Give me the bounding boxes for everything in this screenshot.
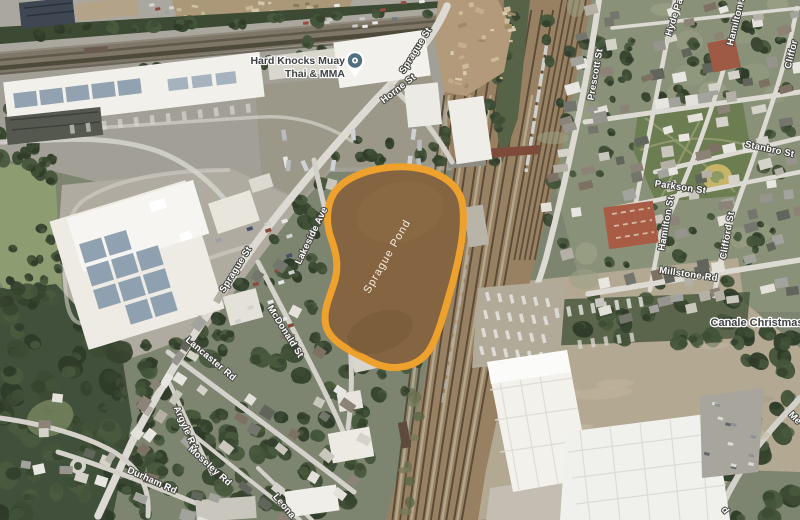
svg-text:Canale Christmas: Canale Christmas [711, 317, 800, 329]
svg-text:Thai & MMA: Thai & MMA [285, 68, 345, 80]
svg-text:Hard Knocks Muay: Hard Knocks Muay [250, 55, 345, 67]
